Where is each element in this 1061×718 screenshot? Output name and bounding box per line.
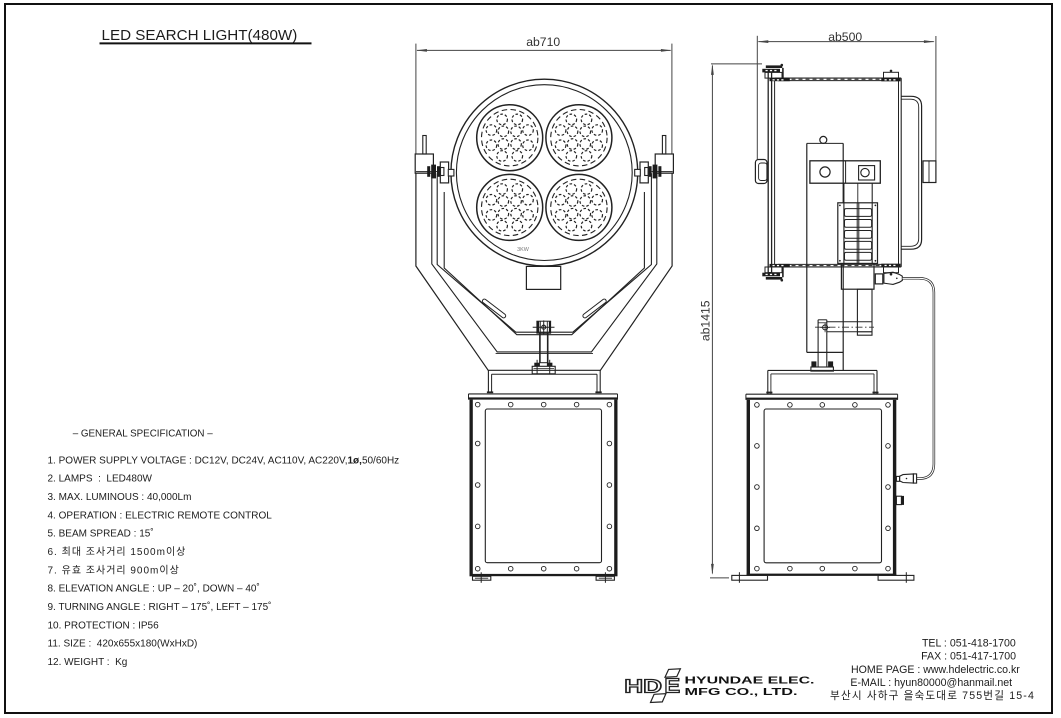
- svg-text:10. PROTECTION : IP56: 10. PROTECTION : IP56: [48, 620, 160, 631]
- svg-text:2. LAMPS : LED480W: 2. LAMPS : LED480W: [48, 474, 153, 485]
- svg-text:7. 유효 조사거리 900m이상: 7. 유효 조사거리 900m이상: [48, 564, 180, 576]
- svg-text:HYUNDAE ELEC.: HYUNDAE ELEC.: [685, 676, 815, 687]
- svg-text:3. MAX. LUMINOUS : 40,000Lm: 3. MAX. LUMINOUS : 40,000Lm: [48, 492, 192, 503]
- svg-text:ab710: ab710: [526, 35, 560, 49]
- svg-text:6. 최대 조사거리 1500m이상: 6. 최대 조사거리 1500m이상: [48, 546, 187, 558]
- svg-text:LED SEARCH LIGHT(480W): LED SEARCH LIGHT(480W): [102, 27, 298, 44]
- svg-text:ab1415: ab1415: [699, 300, 713, 341]
- svg-text:8. ELEVATION ANGLE : UP – 20˚,: 8. ELEVATION ANGLE : UP – 20˚, DOWN – 40…: [48, 583, 260, 595]
- svg-text:12. WEIGHT : Kg: 12. WEIGHT : Kg: [48, 657, 128, 668]
- svg-text:HOME PAGE : www.hdelectric.co.: HOME PAGE : www.hdelectric.co.kr: [851, 664, 1020, 676]
- svg-text:FAX : 051-417-1700: FAX : 051-417-1700: [921, 651, 1016, 663]
- svg-text:E-MAIL : hyun80000@hanmail.net: E-MAIL : hyun80000@hanmail.net: [850, 677, 1012, 689]
- svg-text:– GENERAL SPECIFICATION –: – GENERAL SPECIFICATION –: [73, 429, 213, 440]
- svg-text:11. SIZE : 420x655x180(WxHxD): 11. SIZE : 420x655x180(WxHxD): [48, 639, 198, 650]
- svg-text:MFG CO., LTD.: MFG CO., LTD.: [685, 687, 798, 698]
- svg-text:3KW: 3KW: [517, 247, 530, 253]
- svg-text:4. OPERATION : ELECTRIC REMOTE: 4. OPERATION : ELECTRIC REMOTE CONTROL: [48, 510, 273, 521]
- svg-text:E: E: [664, 674, 680, 697]
- svg-text:1. POWER SUPPLY VOLTAGE : DC12: 1. POWER SUPPLY VOLTAGE : DC12V, DC24V, …: [48, 455, 400, 466]
- svg-text:5. BEAM SPREAD : 15˚: 5. BEAM SPREAD : 15˚: [48, 528, 154, 540]
- svg-text:부산시 사하구 을숙도대로 755번길 15-4: 부산시 사하구 을숙도대로 755번길 15-4: [830, 689, 1035, 702]
- svg-text:9. TURNING ANGLE : RIGHT – 175: 9. TURNING ANGLE : RIGHT – 175˚, LEFT – …: [48, 601, 272, 613]
- svg-text:TEL : 051-418-1700: TEL : 051-418-1700: [922, 637, 1016, 649]
